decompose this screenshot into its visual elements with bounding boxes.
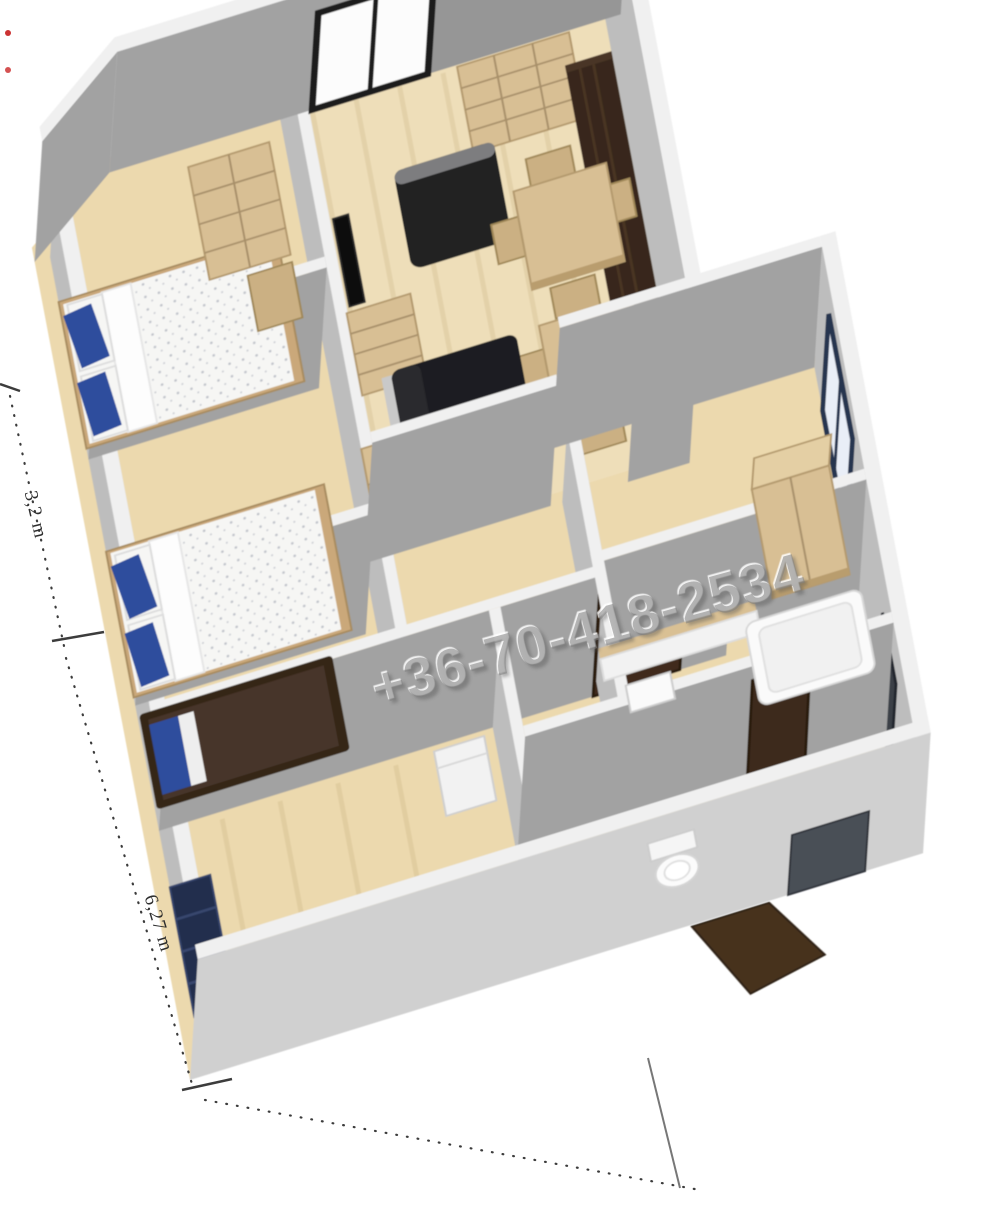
bedroom-1-bench [248,262,303,331]
fridge [434,736,496,816]
dimension-label-a: 3,2 m [20,489,51,541]
floorplan-3d-render: Nappali [0,0,1000,1214]
building: Nappali [0,0,968,1162]
floorplan-canvas: Nappali [0,0,1000,1214]
red-marker [5,30,11,73]
